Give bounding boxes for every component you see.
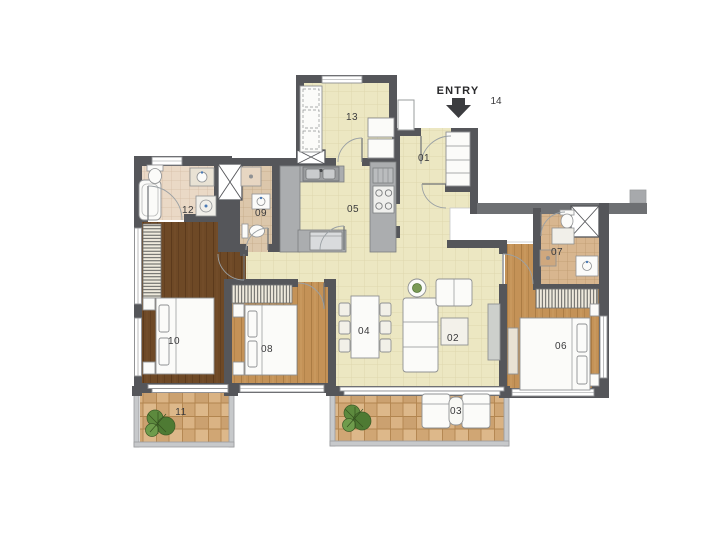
room-10-label: 10 (168, 336, 180, 347)
room-13-label: 13 (346, 112, 358, 123)
washing-machine (196, 196, 216, 216)
chair (380, 339, 391, 352)
nightstand (233, 362, 244, 375)
nightstand (233, 304, 244, 317)
room-06-label: 06 (555, 341, 567, 352)
pillow (577, 356, 587, 384)
balcony-rail (504, 394, 509, 446)
refrigerator (368, 118, 394, 137)
floor-plan-drawing: 01 02 03 04 05 06 07 08 09 10 11 12 13 E… (0, 0, 720, 540)
entry-marker: ENTRY 14 (437, 85, 502, 118)
room-01-label: 01 (418, 153, 430, 164)
bathroom-vanity (252, 194, 270, 209)
balcony-rail (229, 392, 234, 447)
entry-number: 14 (490, 96, 502, 107)
shower (241, 167, 261, 186)
balcony-rail (134, 442, 234, 447)
lounge-chair (422, 394, 450, 428)
room-07-label: 07 (551, 247, 563, 258)
duct-shaft (218, 164, 242, 200)
entry-text: ENTRY (437, 85, 480, 97)
chair (339, 339, 350, 352)
cooktop (373, 186, 394, 213)
toilet (242, 224, 265, 238)
pillow (159, 305, 169, 332)
wardrobe (536, 289, 598, 308)
chair (339, 321, 350, 334)
wardrobe (232, 285, 292, 303)
pillow (248, 341, 257, 367)
dresser (508, 328, 518, 374)
nightstand (143, 362, 155, 374)
sliding-door (152, 389, 228, 393)
toilet (560, 210, 574, 228)
room-08-label: 08 (261, 344, 273, 355)
chair (380, 303, 391, 316)
entry-arrow-icon (446, 98, 471, 118)
room-12-label: 12 (182, 205, 194, 216)
chair (339, 303, 350, 316)
bathroom-shelf (552, 228, 574, 244)
room-05-label: 05 (347, 204, 359, 215)
sliding-door (340, 387, 504, 391)
utility-cabinet (300, 86, 322, 152)
lounge-chair (462, 394, 490, 428)
room-09-label: 09 (255, 208, 267, 219)
balcony-rail (330, 441, 509, 446)
shoe-cabinet (446, 132, 470, 186)
room-02-label: 02 (447, 333, 459, 344)
duct-shaft (571, 206, 599, 237)
pillow (577, 324, 587, 352)
balcony-rail (134, 392, 139, 447)
chair (380, 321, 391, 334)
nightstand (590, 374, 599, 386)
sliding-door (148, 385, 228, 389)
faucet (319, 169, 322, 172)
room-03-label: 03 (450, 406, 462, 417)
exterior-ledge (630, 190, 646, 203)
utility-counter (368, 139, 394, 158)
pillow (248, 311, 257, 337)
nightstand (590, 304, 599, 316)
room-04-label: 04 (358, 326, 370, 337)
bathroom-vanity (190, 168, 214, 186)
kitchen-counter (280, 166, 300, 252)
floor-plan-canvas: 01 02 03 04 05 06 07 08 09 10 11 12 13 E… (0, 0, 720, 540)
room-11-label: 11 (175, 407, 186, 418)
nightstand (143, 298, 155, 310)
wardrobe (143, 224, 161, 298)
bathroom-vanity (576, 256, 598, 276)
balcony-rail (330, 394, 335, 446)
tv-unit (488, 304, 500, 360)
